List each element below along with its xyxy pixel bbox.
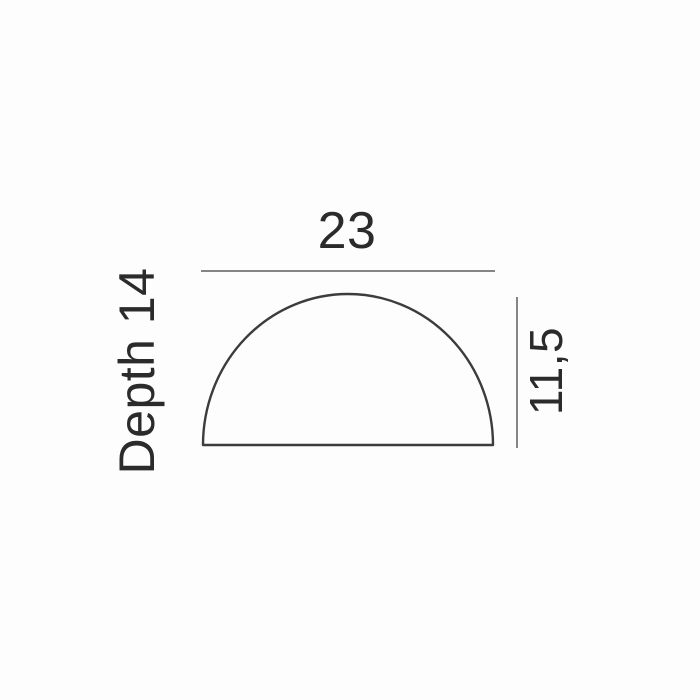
- height-dimension-line: [516, 297, 518, 448]
- width-dimension-line: [201, 270, 495, 272]
- dimension-diagram: 23 11,5 Depth 14: [0, 0, 700, 700]
- height-dimension-label: 11,5: [523, 291, 573, 451]
- width-dimension-label: 23: [198, 205, 496, 257]
- dome-path: [203, 294, 493, 445]
- dome-outline: [200, 291, 496, 449]
- depth-dimension-label: Depth 14: [112, 259, 168, 483]
